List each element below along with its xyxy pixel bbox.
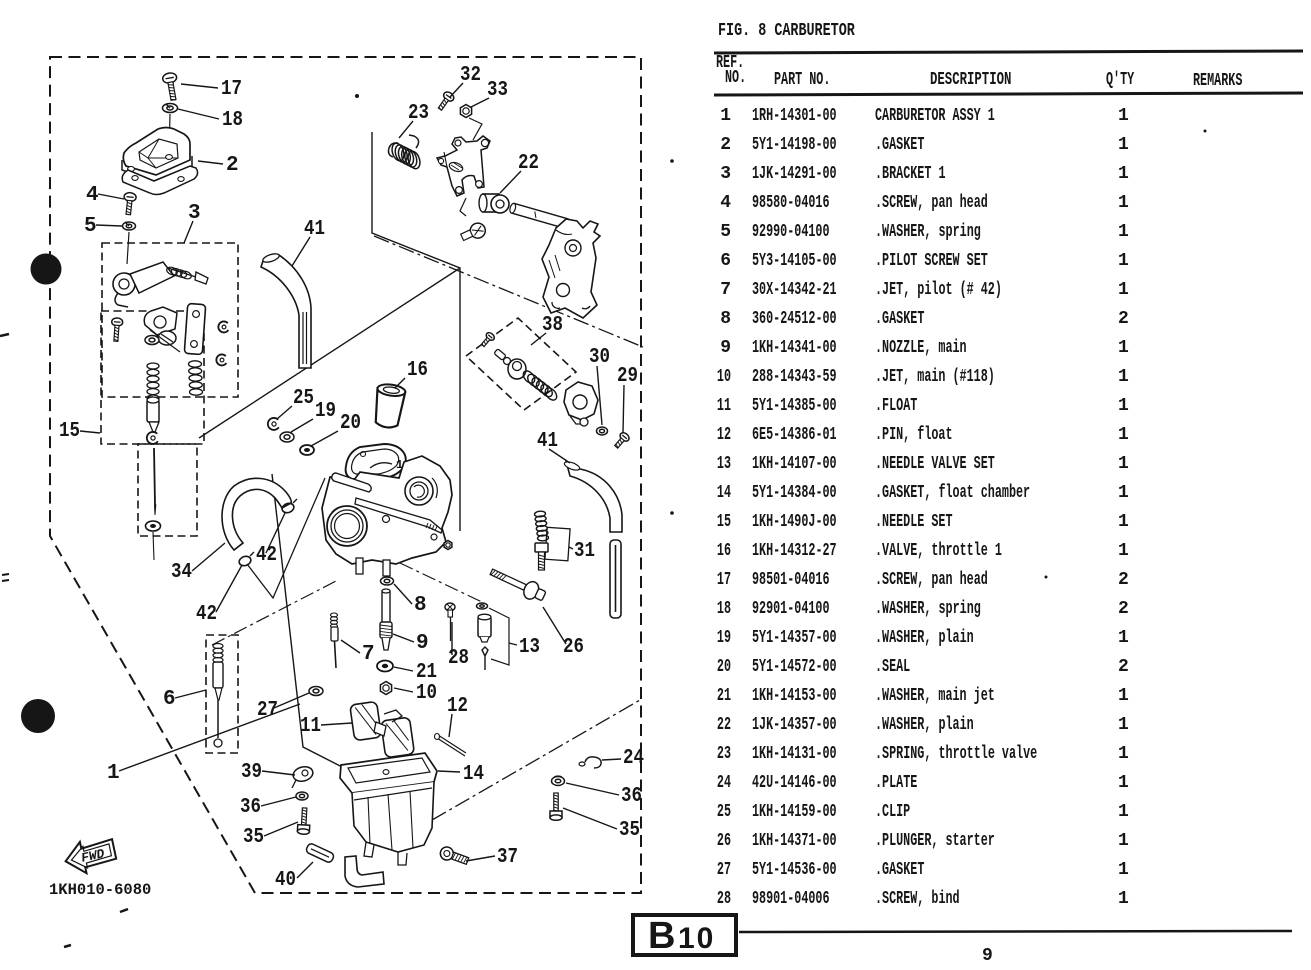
svg-text:24: 24 (717, 773, 731, 793)
svg-text:1: 1 (1118, 425, 1129, 445)
svg-text:1KH-14371-00: 1KH-14371-00 (752, 831, 837, 851)
svg-text:3: 3 (720, 164, 731, 184)
svg-text:1: 1 (1118, 831, 1129, 851)
svg-text:1JK-14291-00: 1JK-14291-00 (752, 164, 837, 184)
svg-text:1: 1 (1118, 251, 1129, 271)
svg-text:5Y1-14357-00: 5Y1-14357-00 (752, 628, 837, 648)
svg-text:19: 19 (315, 400, 336, 423)
svg-text:5: 5 (84, 215, 97, 238)
svg-text:1KH-14131-00: 1KH-14131-00 (752, 744, 837, 764)
svg-text:.SCREW, pan head: .SCREW, pan head (875, 570, 988, 590)
svg-text:9: 9 (982, 946, 993, 966)
svg-text:41: 41 (304, 218, 325, 241)
svg-text:2: 2 (1118, 657, 1129, 677)
svg-text:1: 1 (1118, 686, 1129, 706)
svg-text:1: 1 (1118, 367, 1129, 387)
svg-text:92990-04100: 92990-04100 (752, 222, 830, 242)
svg-text:NO.: NO. (725, 68, 746, 88)
svg-text:1: 1 (1118, 396, 1129, 416)
svg-text:23: 23 (717, 744, 731, 764)
svg-text:10: 10 (717, 367, 731, 387)
svg-text:1: 1 (1118, 744, 1129, 764)
svg-text:1: 1 (1118, 222, 1129, 242)
svg-text:2: 2 (720, 135, 731, 155)
svg-text:38: 38 (542, 314, 563, 337)
svg-text:1: 1 (1118, 193, 1129, 213)
svg-text:.NOZZLE, main: .NOZZLE, main (875, 338, 967, 358)
svg-text:1: 1 (1118, 338, 1129, 358)
svg-text:9: 9 (416, 632, 429, 655)
svg-text:30X-14342-21: 30X-14342-21 (752, 280, 837, 300)
svg-text:15: 15 (59, 420, 80, 443)
svg-text:.NEEDLE VALVE SET: .NEEDLE VALVE SET (875, 454, 995, 474)
svg-text:25: 25 (717, 802, 731, 822)
svg-text:98901-04006: 98901-04006 (752, 889, 830, 909)
svg-text:11: 11 (717, 396, 731, 416)
svg-text:1KH-14312-27: 1KH-14312-27 (752, 541, 837, 561)
svg-text:2: 2 (226, 154, 239, 177)
svg-text:8: 8 (414, 594, 427, 617)
svg-text:3: 3 (188, 202, 201, 225)
svg-text:.SCREW, bind: .SCREW, bind (875, 889, 960, 909)
svg-text:32: 32 (460, 64, 481, 87)
svg-text:33: 33 (487, 79, 508, 102)
svg-text:39: 39 (241, 761, 262, 784)
svg-text:23: 23 (408, 102, 429, 125)
svg-text:.WASHER, plain: .WASHER, plain (875, 628, 974, 648)
svg-text:34: 34 (171, 561, 192, 584)
svg-text:1: 1 (1118, 512, 1129, 532)
svg-text:360-24512-00: 360-24512-00 (752, 309, 837, 329)
svg-text:.SEAL: .SEAL (875, 657, 910, 677)
svg-text:18: 18 (222, 109, 243, 132)
svg-text:.FLOAT: .FLOAT (875, 396, 917, 416)
svg-text:1: 1 (1118, 280, 1129, 300)
svg-text:10: 10 (416, 682, 437, 705)
svg-text:11: 11 (300, 715, 321, 738)
svg-text:25: 25 (293, 387, 314, 410)
svg-text:FIG. 8 CARBURETOR: FIG. 8 CARBURETOR (718, 21, 855, 41)
svg-text:.NEEDLE SET: .NEEDLE SET (875, 512, 953, 532)
svg-text:18: 18 (717, 599, 731, 619)
svg-text:2: 2 (1118, 309, 1129, 329)
svg-text:.PIN, float: .PIN, float (875, 425, 953, 445)
svg-text:24: 24 (623, 747, 644, 770)
svg-text:4: 4 (86, 184, 99, 207)
svg-text:1RH-14301-00: 1RH-14301-00 (752, 106, 837, 126)
svg-text:1KH-14341-00: 1KH-14341-00 (752, 338, 837, 358)
svg-text:.WASHER, plain: .WASHER, plain (875, 715, 974, 735)
svg-text:1: 1 (1118, 164, 1129, 184)
svg-text:35: 35 (619, 819, 640, 842)
svg-text:28: 28 (717, 889, 731, 909)
svg-text:1KH-14153-00: 1KH-14153-00 (752, 686, 837, 706)
svg-text:.GASKET: .GASKET (875, 309, 925, 329)
svg-text:288-14343-59: 288-14343-59 (752, 367, 837, 387)
svg-text:6: 6 (720, 251, 731, 271)
svg-text:20: 20 (717, 657, 731, 677)
svg-text:42: 42 (256, 544, 277, 567)
svg-text:42: 42 (196, 603, 217, 626)
svg-text:19: 19 (717, 628, 731, 648)
svg-text:Q'TY: Q'TY (1106, 70, 1134, 90)
svg-text:.WASHER, spring: .WASHER, spring (875, 599, 981, 619)
svg-text:21: 21 (416, 661, 437, 684)
svg-text:.SCREW, pan head: .SCREW, pan head (875, 193, 988, 213)
svg-text:.GASKET, float chamber: .GASKET, float chamber (875, 483, 1030, 503)
svg-text:36: 36 (240, 796, 261, 819)
svg-text:.PLATE: .PLATE (875, 773, 917, 793)
svg-text:1KH-14159-00: 1KH-14159-00 (752, 802, 837, 822)
svg-text:1: 1 (1118, 715, 1129, 735)
svg-text:15: 15 (717, 512, 731, 532)
svg-text:1: 1 (1118, 541, 1129, 561)
svg-text:7: 7 (362, 643, 375, 666)
svg-text:.WASHER, main jet: .WASHER, main jet (875, 686, 995, 706)
svg-text:.GASKET: .GASKET (875, 135, 925, 155)
svg-text:36: 36 (621, 785, 642, 808)
svg-text:17: 17 (221, 78, 242, 101)
svg-text:.BRACKET 1: .BRACKET 1 (875, 164, 946, 184)
svg-text:29: 29 (617, 365, 638, 388)
svg-text:21: 21 (717, 686, 731, 706)
svg-text:10: 10 (678, 922, 715, 955)
svg-text:27: 27 (717, 860, 731, 880)
svg-text:37: 37 (497, 846, 518, 869)
svg-text:5: 5 (720, 222, 731, 242)
svg-text:1JK-14357-00: 1JK-14357-00 (752, 715, 837, 735)
svg-text:5Y1-14384-00: 5Y1-14384-00 (752, 483, 837, 503)
svg-text:12: 12 (717, 425, 731, 445)
svg-text:6: 6 (163, 688, 176, 711)
svg-text:PART NO.: PART NO. (774, 70, 830, 90)
svg-text:26: 26 (717, 831, 731, 851)
svg-text:CARBURETOR ASSY 1: CARBURETOR ASSY 1 (875, 106, 995, 126)
svg-text:31: 31 (574, 540, 595, 563)
svg-text:.WASHER, spring: .WASHER, spring (875, 222, 981, 242)
svg-text:1: 1 (1118, 773, 1129, 793)
svg-text:5Y1-14198-00: 5Y1-14198-00 (752, 135, 837, 155)
svg-text:13: 13 (519, 636, 540, 659)
svg-text:B: B (648, 915, 675, 957)
svg-text:1: 1 (107, 762, 120, 785)
svg-text:REMARKS: REMARKS (1193, 71, 1243, 91)
svg-text:1KH-1490J-00: 1KH-1490J-00 (752, 512, 837, 532)
svg-text:92901-04100: 92901-04100 (752, 599, 830, 619)
svg-text:5Y1-14536-00: 5Y1-14536-00 (752, 860, 837, 880)
svg-text:.PLUNGER, starter: .PLUNGER, starter (875, 831, 995, 851)
svg-text:.JET, main (#118): .JET, main (#118) (875, 367, 995, 387)
svg-text:20: 20 (340, 412, 361, 435)
svg-text:7: 7 (720, 280, 731, 300)
svg-text:42U-14146-00: 42U-14146-00 (752, 773, 837, 793)
svg-text:40: 40 (275, 869, 296, 892)
svg-text:1: 1 (1118, 483, 1129, 503)
svg-text:.CLIP: .CLIP (875, 802, 910, 822)
svg-text:5Y1-14572-00: 5Y1-14572-00 (752, 657, 837, 677)
svg-text:1: 1 (1118, 106, 1129, 126)
svg-text:DESCRIPTION: DESCRIPTION (930, 70, 1011, 90)
svg-text:28: 28 (448, 647, 469, 670)
svg-text:17: 17 (717, 570, 731, 590)
svg-text:.VALVE, throttle 1: .VALVE, throttle 1 (875, 541, 1002, 561)
svg-text:9: 9 (720, 338, 731, 358)
svg-text:5Y3-14105-00: 5Y3-14105-00 (752, 251, 837, 271)
svg-text:1: 1 (1118, 135, 1129, 155)
svg-text:1KH-14107-00: 1KH-14107-00 (752, 454, 837, 474)
svg-text:98501-04016: 98501-04016 (752, 570, 830, 590)
svg-text:5Y1-14385-00: 5Y1-14385-00 (752, 396, 837, 416)
svg-text:8: 8 (720, 309, 731, 329)
svg-text:1: 1 (1118, 889, 1129, 909)
svg-text:.GASKET: .GASKET (875, 860, 925, 880)
svg-text:1KH010-6080: 1KH010-6080 (49, 881, 151, 899)
svg-text:1: 1 (1118, 628, 1129, 648)
svg-text:22: 22 (518, 152, 539, 175)
svg-text:12: 12 (447, 695, 468, 718)
svg-text:26: 26 (563, 636, 584, 659)
svg-text:.JET, pilot (# 42): .JET, pilot (# 42) (875, 280, 1002, 300)
svg-text:35: 35 (243, 826, 264, 849)
svg-text:41: 41 (537, 430, 558, 453)
svg-text:16: 16 (717, 541, 731, 561)
svg-text:1: 1 (1118, 802, 1129, 822)
svg-text:30: 30 (589, 346, 610, 369)
svg-text:1: 1 (1118, 454, 1129, 474)
svg-text:1: 1 (720, 106, 731, 126)
svg-text:14: 14 (717, 483, 731, 503)
svg-text:.SPRING, throttle valve: .SPRING, throttle valve (875, 744, 1037, 764)
svg-text:4: 4 (720, 193, 731, 213)
svg-text:13: 13 (717, 454, 731, 474)
svg-text:2: 2 (1118, 599, 1129, 619)
svg-text:6E5-14386-01: 6E5-14386-01 (752, 425, 837, 445)
svg-text:2: 2 (1118, 570, 1129, 590)
svg-text:16: 16 (407, 359, 428, 382)
svg-text:98580-04016: 98580-04016 (752, 193, 830, 213)
svg-text:22: 22 (717, 715, 731, 735)
svg-text:14: 14 (463, 763, 484, 786)
svg-text:.PILOT SCREW SET: .PILOT SCREW SET (875, 251, 988, 271)
svg-text:1: 1 (1118, 860, 1129, 880)
